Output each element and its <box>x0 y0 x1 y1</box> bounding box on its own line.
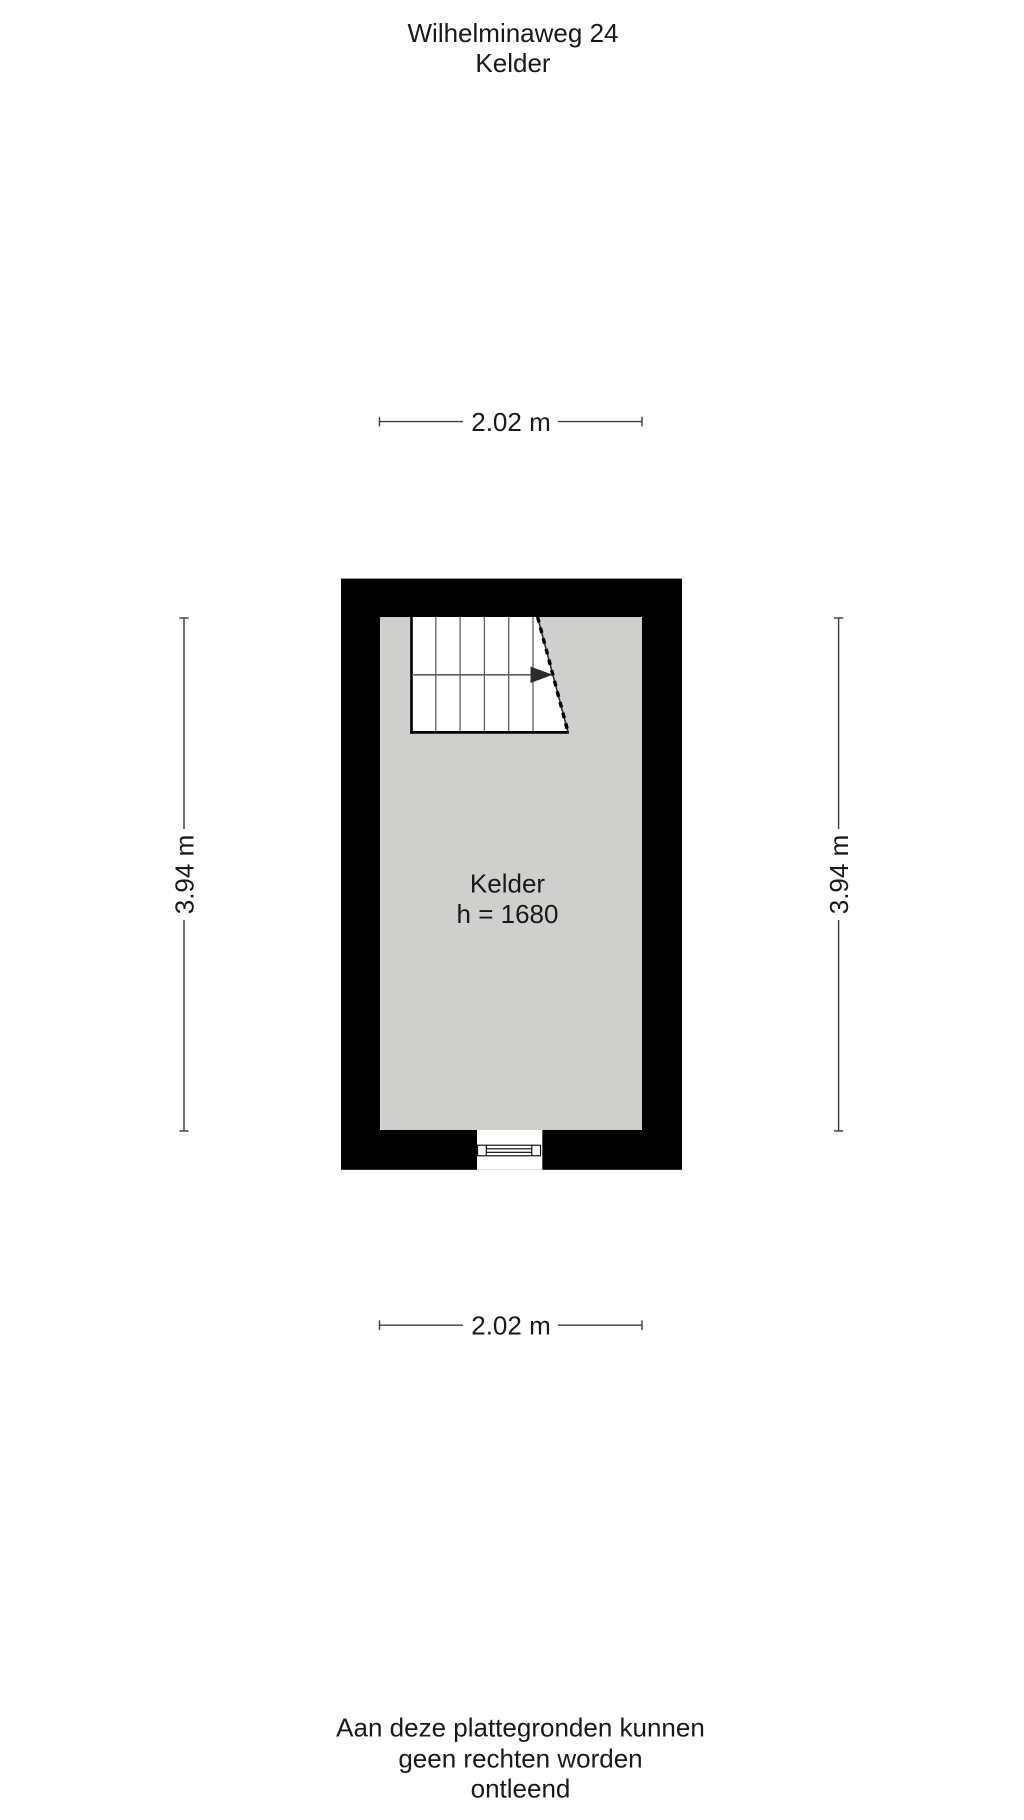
svg-text:Aan deze plattegronden kunnen: Aan deze plattegronden kunnen <box>336 1713 705 1743</box>
svg-text:ontleend: ontleend <box>471 1774 571 1804</box>
svg-text:Kelder: Kelder <box>470 869 545 899</box>
svg-text:h = 1680: h = 1680 <box>457 899 559 929</box>
svg-text:Kelder: Kelder <box>475 48 550 78</box>
svg-text:2.02 m: 2.02 m <box>471 407 551 437</box>
svg-text:2.02 m: 2.02 m <box>471 1311 551 1341</box>
svg-text:geen rechten worden: geen rechten worden <box>398 1744 642 1774</box>
svg-text:3.94 m: 3.94 m <box>169 835 199 915</box>
svg-text:3.94 m: 3.94 m <box>824 835 854 915</box>
svg-text:Wilhelminaweg 24: Wilhelminaweg 24 <box>408 18 619 48</box>
